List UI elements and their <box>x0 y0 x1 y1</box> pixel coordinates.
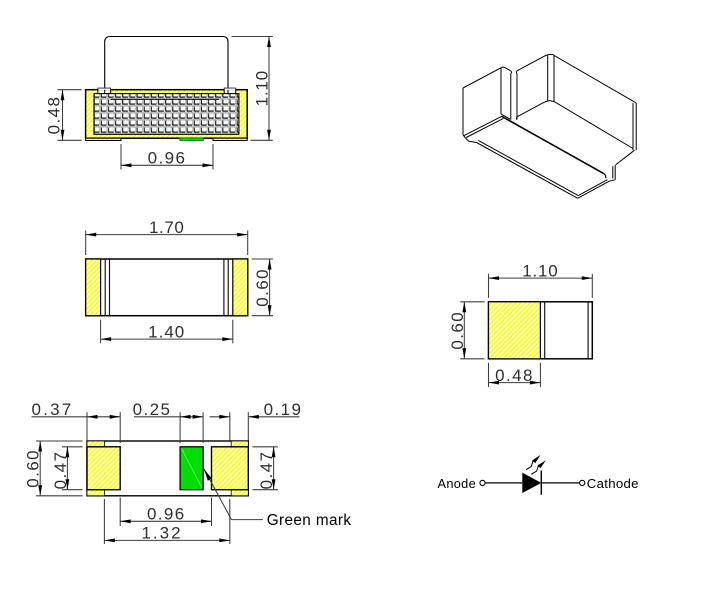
svg-text:Anode: Anode <box>438 476 477 491</box>
svg-text:1.10: 1.10 <box>252 70 271 106</box>
svg-text:0.60: 0.60 <box>24 449 43 488</box>
svg-text:0.37: 0.37 <box>32 400 74 419</box>
svg-text:1.10: 1.10 <box>522 262 558 281</box>
svg-text:0.47: 0.47 <box>257 451 276 490</box>
svg-text:0.25: 0.25 <box>133 400 172 419</box>
svg-text:0.48: 0.48 <box>495 366 534 385</box>
svg-text:Green mark: Green mark <box>267 512 352 529</box>
svg-text:0.19: 0.19 <box>264 400 303 419</box>
svg-text:0.47: 0.47 <box>51 451 70 490</box>
svg-text:Cathode: Cathode <box>587 476 639 491</box>
svg-text:0.60: 0.60 <box>448 311 467 350</box>
svg-text:1.70: 1.70 <box>149 218 185 237</box>
svg-text:0.96: 0.96 <box>148 149 187 168</box>
svg-text:0.48: 0.48 <box>45 96 64 135</box>
svg-text:0.96: 0.96 <box>147 505 186 524</box>
svg-text:1.40: 1.40 <box>148 323 185 342</box>
svg-text:0.60: 0.60 <box>253 268 272 307</box>
svg-text:1.32: 1.32 <box>141 524 182 543</box>
